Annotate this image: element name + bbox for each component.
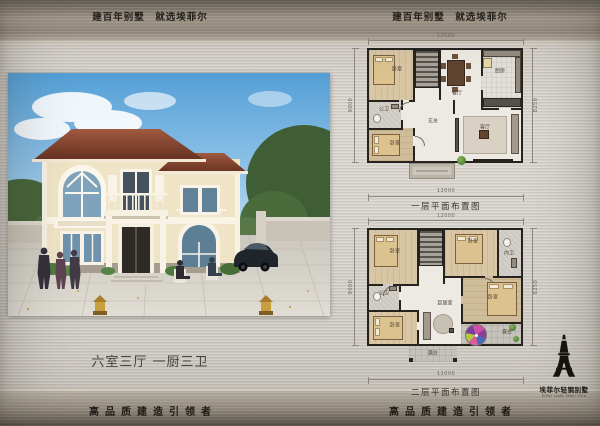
patio-umbrella bbox=[465, 324, 487, 346]
wall bbox=[417, 230, 419, 284]
floor-plan-level-1: 卧室 餐厅 厨房 公卫 玄关 客厅 卧室 bbox=[367, 48, 523, 163]
dim-top-1: 12000 bbox=[437, 33, 455, 39]
chair bbox=[441, 63, 446, 69]
terrace-post bbox=[409, 358, 413, 362]
room-label: 公卫 bbox=[379, 108, 389, 113]
villa-illustration bbox=[8, 73, 330, 316]
dim-line bbox=[368, 220, 524, 221]
porch-column bbox=[160, 216, 166, 273]
brand-name-cn: 埃菲尔轻钢别墅 bbox=[536, 384, 592, 394]
pillow bbox=[489, 284, 499, 289]
entry-steps bbox=[106, 273, 166, 285]
dim-line bbox=[368, 40, 524, 41]
wall bbox=[399, 310, 417, 312]
room-label: 卧室 bbox=[390, 324, 400, 329]
wall bbox=[413, 50, 415, 100]
coffee-table bbox=[479, 130, 489, 139]
wall bbox=[497, 230, 499, 276]
eiffel-tower-icon bbox=[549, 334, 579, 379]
room-label: 卧室 bbox=[488, 296, 498, 301]
room-label: 客厅 bbox=[480, 126, 490, 131]
bath-sink bbox=[511, 258, 517, 268]
staircase bbox=[415, 50, 439, 88]
pillow bbox=[375, 318, 380, 326]
pillow bbox=[375, 57, 383, 62]
plant bbox=[457, 156, 466, 165]
fridge bbox=[483, 58, 492, 68]
dim-line bbox=[368, 379, 524, 380]
wall bbox=[369, 284, 383, 286]
pillow bbox=[376, 237, 384, 242]
room-label: 卧室 bbox=[392, 68, 402, 73]
toilet bbox=[373, 114, 381, 123]
pillow bbox=[374, 146, 379, 154]
room-label: 卧室 bbox=[390, 142, 400, 147]
brochure-page: 建百年别墅 就选埃菲尔 建百年别墅 就选埃菲尔 bbox=[0, 0, 600, 426]
bath-sink bbox=[391, 104, 399, 109]
wall bbox=[453, 100, 455, 114]
wall bbox=[445, 276, 485, 278]
footer-slogan-right: 高品质建造引领者 bbox=[300, 403, 600, 418]
room-label: 露台 bbox=[502, 331, 512, 336]
dim-line bbox=[354, 48, 355, 163]
wall bbox=[481, 108, 499, 110]
header-slogan-left: 建百年别墅 就选埃菲尔 bbox=[0, 9, 300, 23]
tv-cabinet bbox=[455, 118, 459, 152]
dim-line bbox=[532, 48, 533, 163]
door-swing bbox=[415, 136, 425, 146]
chair bbox=[466, 63, 471, 69]
sofa bbox=[423, 312, 431, 340]
sofa bbox=[511, 114, 519, 154]
chair bbox=[466, 76, 471, 82]
plan-caption-2: 二层平面布置图 bbox=[346, 386, 546, 398]
brand-name-en: Eiffel Light Steel Villa bbox=[536, 394, 592, 398]
footer-slogan-left: 高品质建造引领者 bbox=[0, 403, 300, 418]
dim-line bbox=[354, 228, 355, 346]
room-label: 卧室 bbox=[468, 240, 478, 245]
porch-steps bbox=[409, 163, 455, 179]
dim-top-2: 12000 bbox=[437, 213, 455, 219]
wall bbox=[461, 304, 463, 324]
dim-bottom-2: 12000 bbox=[437, 371, 455, 377]
chair bbox=[441, 76, 446, 82]
wall bbox=[417, 330, 419, 344]
pillow bbox=[386, 237, 394, 242]
room-label: 餐厅 bbox=[452, 92, 462, 97]
room-label: 玄关 bbox=[428, 120, 438, 125]
room-label: 公卫 bbox=[379, 292, 389, 297]
floor-plan-level-2: 卧室 卧室 内卫 公卫 卧室 卧室 起居室 露台 露台 bbox=[367, 228, 523, 346]
wall bbox=[369, 310, 399, 312]
pillow bbox=[385, 57, 393, 62]
brand-logo: 埃菲尔轻钢别墅 Eiffel Light Steel Villa bbox=[536, 334, 592, 398]
dim-line bbox=[532, 228, 533, 346]
wall bbox=[409, 100, 415, 102]
pillow bbox=[375, 328, 380, 336]
wall bbox=[493, 276, 521, 278]
pillow bbox=[503, 284, 513, 289]
porch-column bbox=[106, 216, 112, 273]
bay-window bbox=[473, 159, 513, 161]
wall bbox=[369, 128, 401, 130]
wall bbox=[417, 310, 419, 322]
dining-table bbox=[447, 60, 465, 86]
wall bbox=[413, 146, 415, 161]
staircase bbox=[419, 230, 443, 266]
dim-right-2: 8250 bbox=[533, 280, 539, 295]
kitchen-counter bbox=[515, 57, 521, 93]
wall bbox=[399, 284, 401, 292]
dim-bottom-1: 12000 bbox=[437, 188, 455, 194]
room-label: 内卫 bbox=[504, 252, 514, 257]
plant bbox=[513, 336, 519, 342]
kitchen-cabinet bbox=[483, 98, 521, 107]
bath-sink bbox=[389, 286, 397, 291]
dim-line bbox=[368, 196, 524, 197]
dim-right-1: 8250 bbox=[533, 98, 539, 113]
room-label: 卧室 bbox=[390, 250, 400, 255]
header-slogan-right: 建百年别墅 就选埃菲尔 bbox=[300, 9, 600, 23]
layout-spec-text: 六室三厅 一厨三卫 bbox=[0, 351, 300, 370]
pillow bbox=[457, 236, 466, 241]
room-label: 厨房 bbox=[495, 70, 505, 75]
terrace-post bbox=[453, 358, 457, 362]
toilet bbox=[503, 238, 511, 247]
wall bbox=[369, 100, 399, 102]
wall bbox=[439, 50, 441, 100]
plan-caption-1: 一层平面布置图 bbox=[346, 200, 546, 212]
chair bbox=[452, 54, 458, 59]
kitchen-counter bbox=[483, 50, 521, 57]
wall bbox=[511, 108, 523, 110]
side-table bbox=[449, 328, 454, 333]
villa-photo bbox=[8, 73, 330, 316]
room-label: 起居室 bbox=[437, 302, 452, 307]
pillow bbox=[374, 136, 379, 144]
wall bbox=[401, 120, 403, 130]
wall bbox=[413, 128, 415, 136]
wall bbox=[461, 276, 463, 296]
room-label: 露台 bbox=[428, 352, 438, 357]
